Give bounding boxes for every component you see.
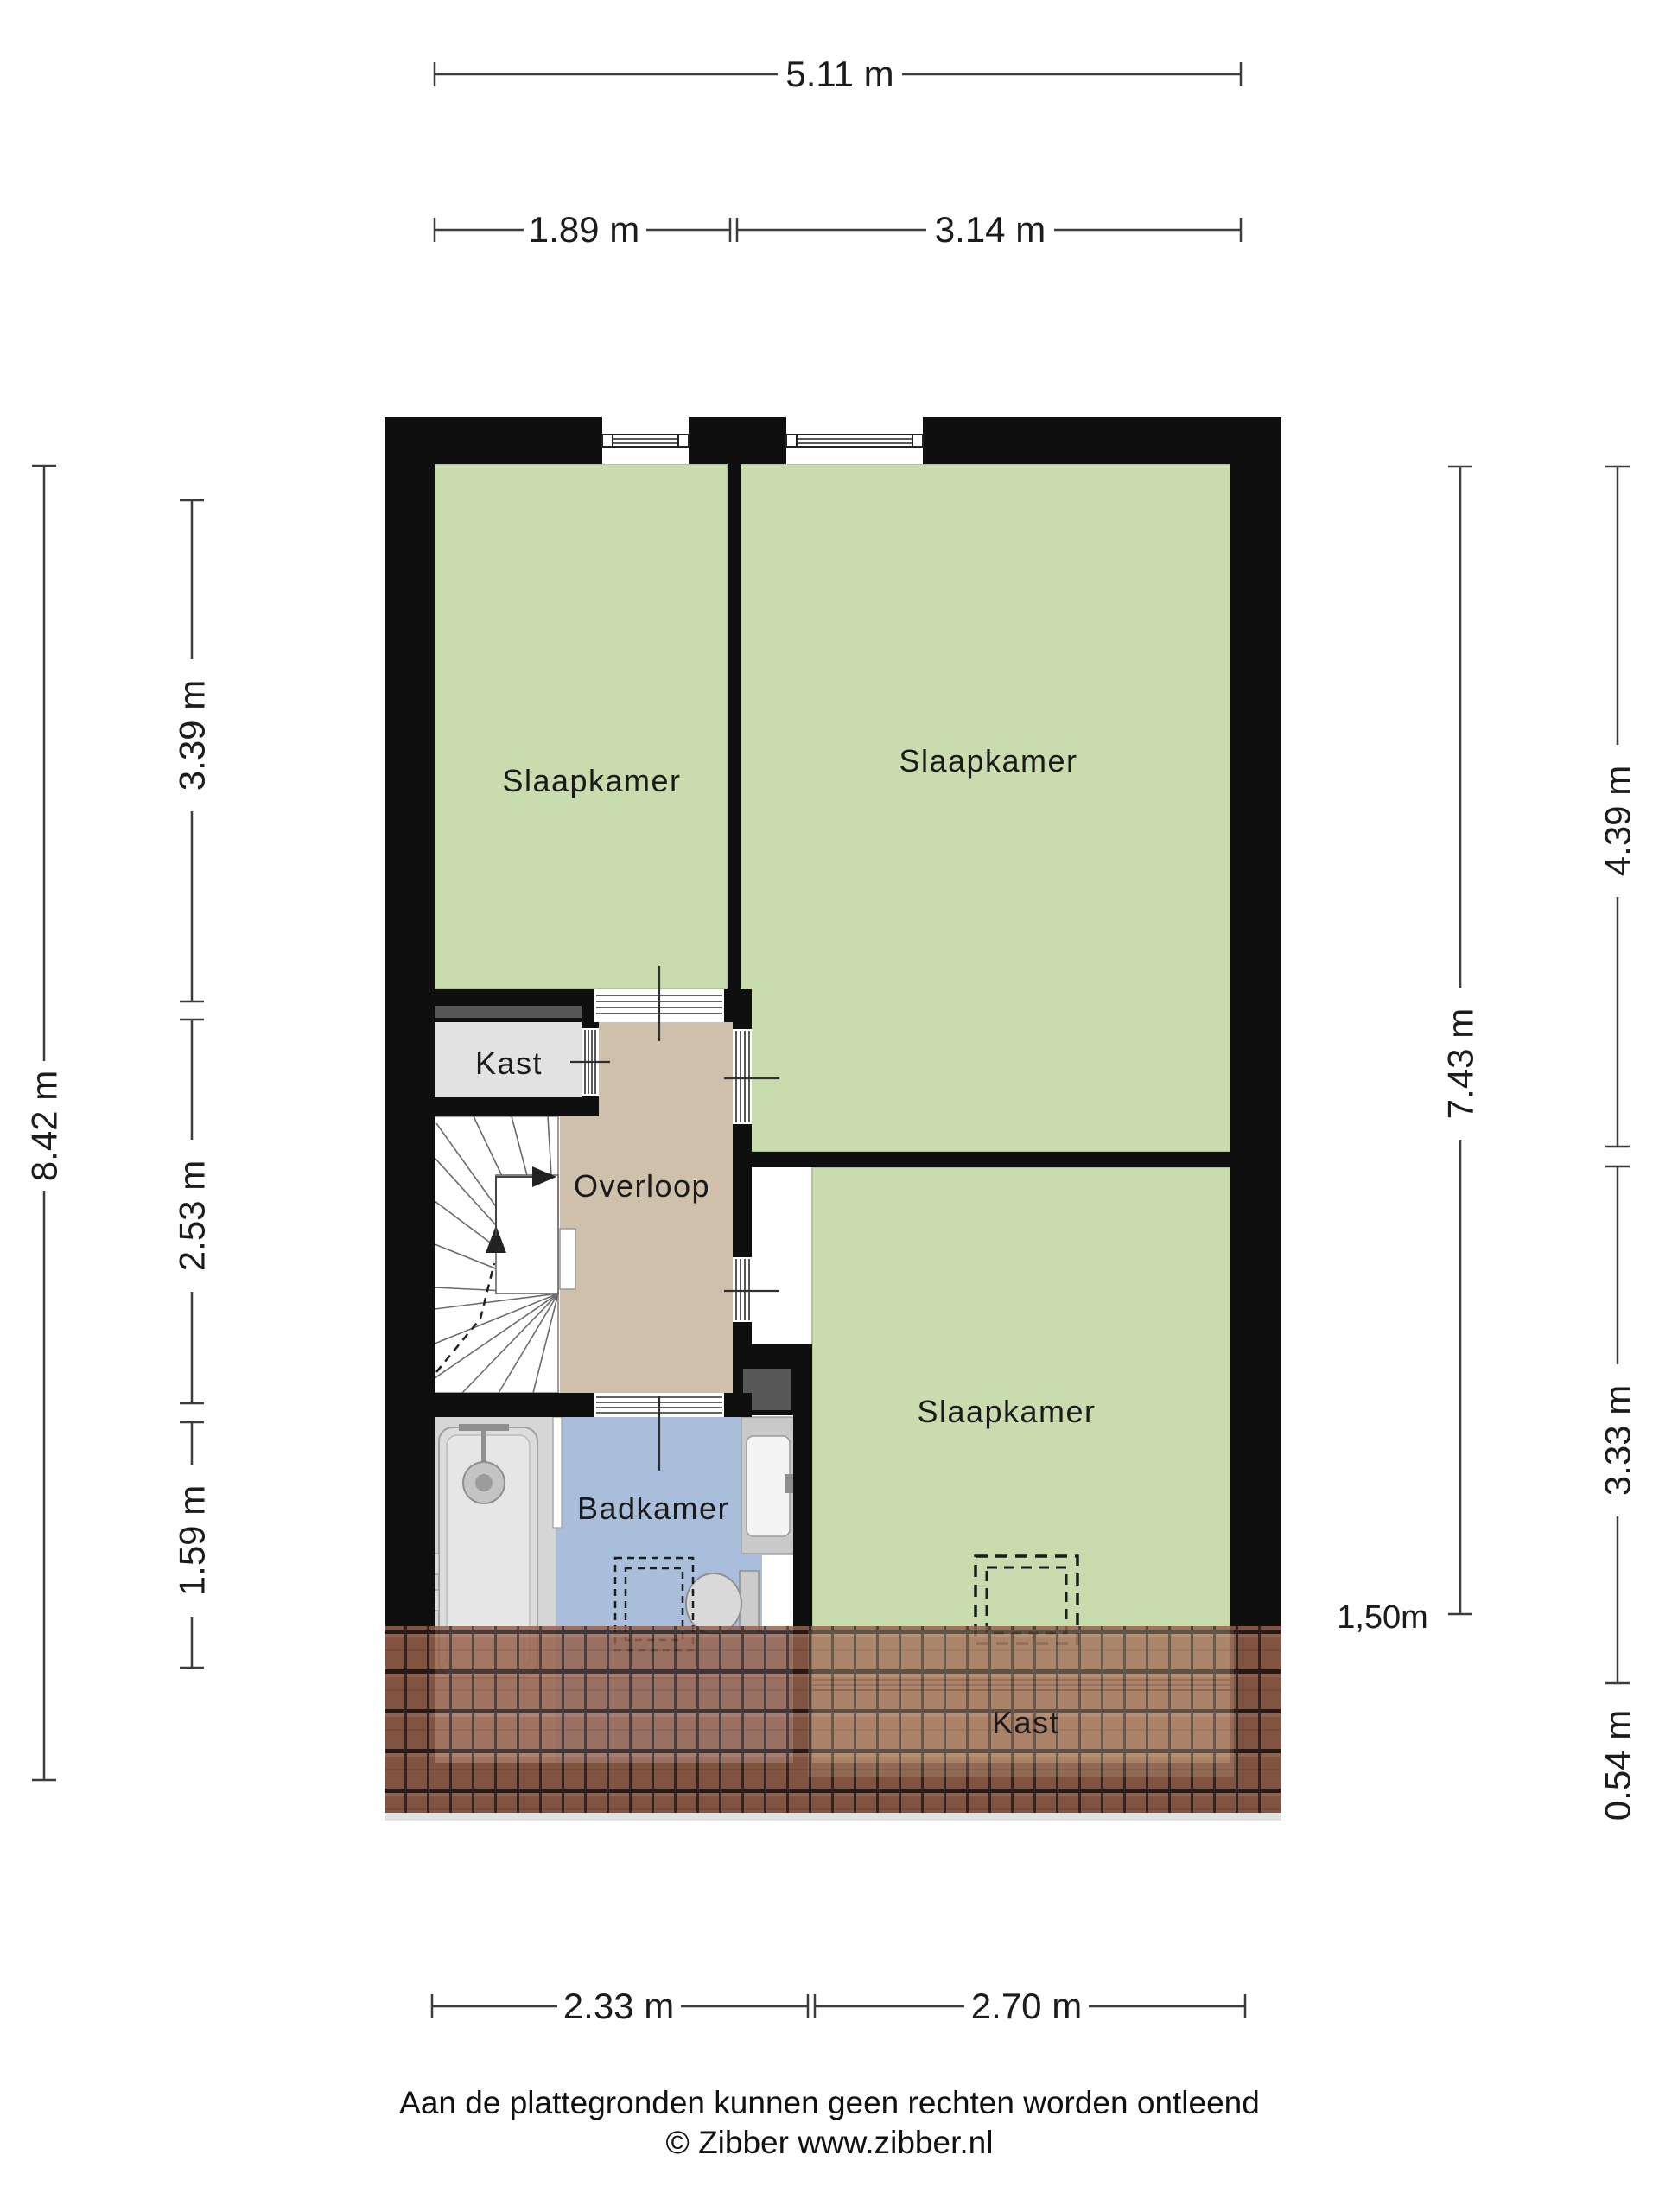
- dim-right-total: 7.43 m: [1440, 467, 1481, 1614]
- footer-copyright: © Zibber www.zibber.nl: [666, 2125, 994, 2160]
- dim-left-segments: 3.39 m 2.53 m 1.59 m: [172, 500, 213, 1668]
- roof-overlay: Kast: [385, 1626, 1281, 1821]
- dim-bottom-split: 2.33 m 2.70 m: [432, 1986, 1245, 2026]
- wall-right: [1230, 417, 1281, 1813]
- closet-back-strip: [435, 1006, 582, 1018]
- door-bedroom-top-right: [733, 1029, 752, 1124]
- shower-head-center: [475, 1474, 493, 1491]
- roof-closet-highlight: [808, 1630, 1234, 1777]
- dim-right-total-label: 7.43 m: [1440, 1008, 1481, 1119]
- floor-plan-page: Slaapkamer Slaapkamer Kast Overloop Badk…: [0, 0, 1659, 2212]
- knee-wall-height-label: 1,50m: [1337, 1599, 1428, 1636]
- dim-left-seg2-label: 2.53 m: [172, 1160, 213, 1271]
- wall-landing-col-2: [733, 1124, 752, 1152]
- bath-white-pad: [762, 1555, 795, 1631]
- dim-left-seg3-label: 1.59 m: [172, 1485, 213, 1596]
- dim-right-seg2-label: 3.33 m: [1598, 1385, 1638, 1496]
- dim-left-total: 8.42 m: [24, 466, 65, 1780]
- wall-corner-bathroom: [724, 1393, 752, 1417]
- wall-stub-duct-top: [733, 1344, 812, 1363]
- shower-partition: [553, 1417, 562, 1528]
- label-bathroom: Badkamer: [577, 1491, 729, 1526]
- dim-left-total-label: 8.42 m: [24, 1071, 65, 1181]
- bath-faucet-bar: [459, 1424, 509, 1431]
- wall-closet-bottom: [385, 1097, 599, 1116]
- footer: Aan de plattegronden kunnen geen rechten…: [399, 2085, 1260, 2160]
- room-bedroom-top-left: [435, 464, 728, 989]
- dim-top-total: 5.11 m: [435, 54, 1241, 94]
- dim-bottom-left-label: 2.33 m: [563, 1986, 674, 2026]
- label-bedroom-top-left: Slaapkamer: [502, 763, 681, 798]
- wall-corner-landing-top: [724, 989, 752, 1022]
- room-bedroom-top-right: [741, 464, 1230, 1152]
- roof-bottom-shadow: [385, 1813, 1281, 1821]
- label-closet-under-roof: Kast: [992, 1705, 1059, 1740]
- toilet-tank: [740, 1571, 759, 1635]
- dim-bottom-right-label: 2.70 m: [971, 1986, 1082, 2026]
- footer-disclaimer: Aan de plattegronden kunnen geen rechten…: [399, 2085, 1260, 2120]
- stair-handrail: [560, 1229, 575, 1289]
- label-closet: Kast: [475, 1046, 543, 1081]
- dim-right-seg3-label: 0.54 m: [1598, 1710, 1638, 1821]
- wall-stairs-bottom: [385, 1393, 594, 1417]
- floor-plan-drawing: Slaapkamer Slaapkamer Kast Overloop Badk…: [0, 0, 1659, 2212]
- label-bedroom-top-right: Slaapkamer: [899, 743, 1077, 779]
- washbasin: [747, 1436, 790, 1536]
- label-landing: Overloop: [574, 1168, 710, 1204]
- dim-left-seg1-label: 3.39 m: [172, 680, 213, 791]
- wall-bedroom-divider: [728, 464, 741, 989]
- stair-well-box: [496, 1175, 558, 1294]
- wall-landing-col-4: [733, 1322, 752, 1344]
- toilet-bowl: [686, 1573, 741, 1634]
- dim-right-segments: 4.39 m 3.33 m 0.54 m: [1598, 467, 1638, 1821]
- dim-top-total-label: 5.11 m: [785, 54, 893, 94]
- wall-bedrooms-right-divider: [733, 1152, 1230, 1167]
- door-bedroom-bottom: [733, 1257, 752, 1322]
- label-bedroom-bottom: Slaapkamer: [917, 1394, 1096, 1429]
- dim-top-split: 1.89 m 3.14 m: [435, 209, 1241, 250]
- staircase: [435, 1116, 575, 1393]
- wall-landing-col-3: [733, 1167, 752, 1257]
- window-bedroom-top-left: [602, 410, 689, 464]
- wall-landing-col-1: [733, 1022, 752, 1029]
- dim-top-right-label: 3.14 m: [935, 209, 1046, 250]
- dim-top-left-label: 1.89 m: [529, 209, 639, 250]
- dim-right-seg1-label: 4.39 m: [1598, 766, 1638, 876]
- window-bedroom-top-right: [786, 410, 923, 464]
